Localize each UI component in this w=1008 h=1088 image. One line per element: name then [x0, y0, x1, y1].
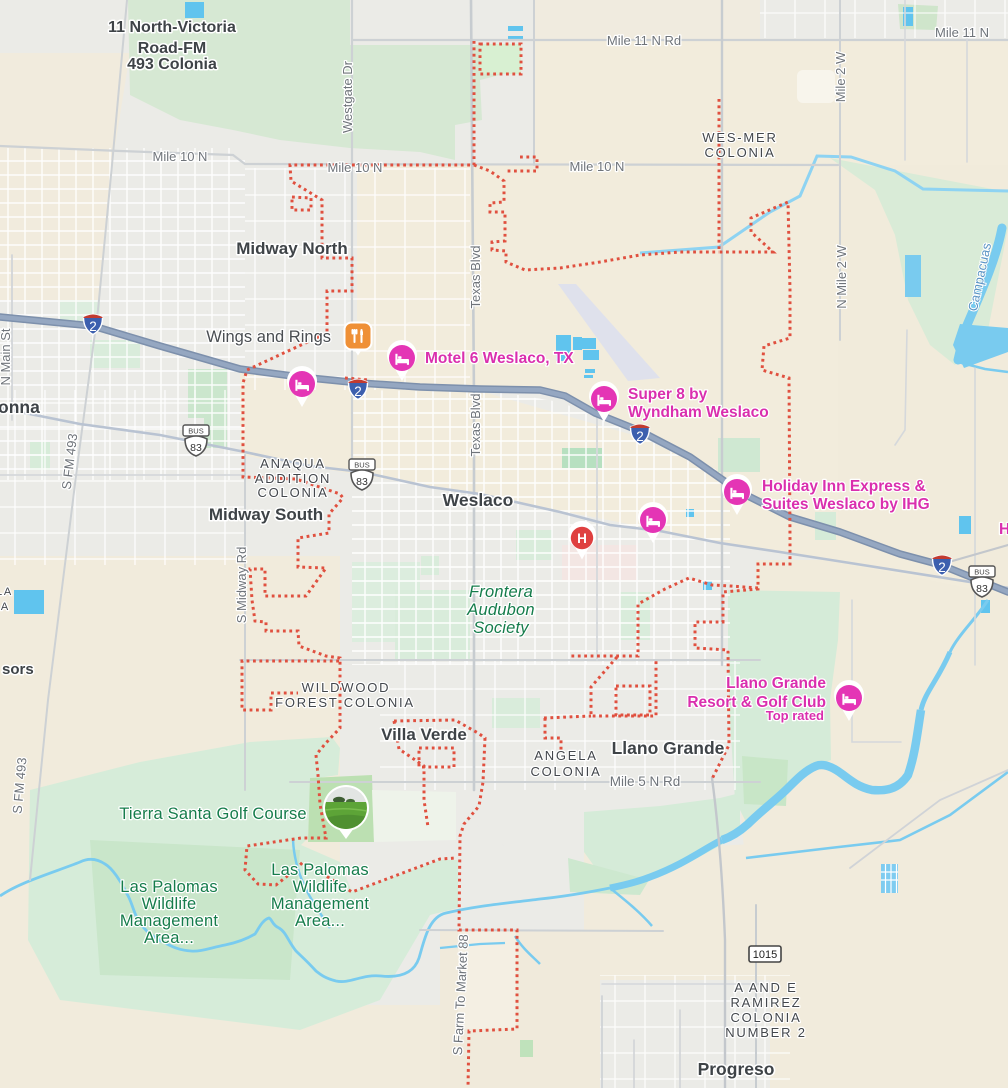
svg-text:A AND E: A AND E — [734, 980, 797, 995]
svg-text:Weslaco: Weslaco — [443, 490, 514, 510]
svg-text:NUMBER 2: NUMBER 2 — [725, 1025, 807, 1040]
svg-text:N Mile 2 W: N Mile 2 W — [834, 244, 849, 308]
svg-text:Tierra Santa Golf Course: Tierra Santa Golf Course — [119, 805, 307, 823]
svg-text:WES-MER: WES-MER — [702, 130, 777, 145]
svg-text:onna: onna — [0, 397, 40, 417]
svg-text:Frontera: Frontera — [469, 583, 533, 601]
svg-text:Texas Blvd: Texas Blvd — [468, 246, 483, 309]
svg-text:ADDITION: ADDITION — [255, 471, 332, 486]
svg-text:Midway North: Midway North — [236, 239, 347, 258]
svg-text:Area...: Area... — [144, 929, 194, 947]
svg-text:Midway South: Midway South — [209, 505, 323, 524]
svg-text:Wildlife: Wildlife — [293, 878, 348, 896]
svg-text:COLONIA: COLONIA — [730, 1010, 801, 1025]
svg-text:11 North-Victoria: 11 North-Victoria — [108, 19, 236, 36]
svg-text:LA: LA — [0, 586, 13, 598]
svg-text:Las Palomas: Las Palomas — [120, 878, 218, 896]
svg-text:Mile 10 N: Mile 10 N — [328, 160, 383, 175]
svg-text:Management: Management — [120, 912, 219, 930]
svg-text:Holiday Inn Express &: Holiday Inn Express & — [762, 478, 926, 495]
svg-text:Wildlife: Wildlife — [142, 895, 197, 913]
svg-text:Wyndham Weslaco: Wyndham Weslaco — [628, 404, 769, 421]
svg-text:sors: sors — [2, 661, 34, 678]
svg-text:Audubon: Audubon — [466, 601, 534, 619]
svg-text:Mile 10 N: Mile 10 N — [570, 159, 625, 174]
svg-text:493 Colonia: 493 Colonia — [127, 56, 217, 73]
svg-text:Area...: Area... — [295, 912, 345, 930]
svg-text:ANAQUA: ANAQUA — [260, 456, 326, 471]
svg-text:Wings and Rings: Wings and Rings — [206, 328, 331, 346]
svg-text:COLONIA: COLONIA — [257, 485, 328, 500]
svg-text:BUS: BUS — [974, 568, 989, 577]
svg-text:Suites Weslaco by IHG: Suites Weslaco by IHG — [762, 496, 930, 513]
svg-text:RAMIREZ: RAMIREZ — [730, 995, 801, 1010]
svg-text:BUS: BUS — [188, 427, 203, 436]
svg-text:Mile 2 W: Mile 2 W — [833, 51, 848, 102]
svg-text:BUS: BUS — [354, 461, 369, 470]
svg-text:Villa Verde: Villa Verde — [381, 725, 467, 744]
svg-text:Westgate Dr: Westgate Dr — [340, 60, 355, 133]
svg-text:Management: Management — [271, 895, 370, 913]
svg-text:Llano Grande: Llano Grande — [612, 738, 725, 758]
svg-text:H: H — [999, 521, 1008, 538]
svg-text:FOREST COLONIA: FOREST COLONIA — [275, 695, 415, 710]
svg-text:Mile 10 N: Mile 10 N — [153, 149, 208, 164]
svg-text:ANGELA: ANGELA — [534, 748, 598, 763]
svg-text:Motel 6 Weslaco, TX: Motel 6 Weslaco, TX — [425, 350, 574, 367]
svg-text:IA: IA — [0, 601, 10, 613]
svg-text:COLONIA: COLONIA — [704, 145, 775, 160]
svg-text:83: 83 — [356, 476, 368, 488]
svg-text:2: 2 — [938, 560, 946, 575]
svg-text:WILDWOOD: WILDWOOD — [302, 680, 391, 695]
svg-text:N Main St: N Main St — [0, 328, 13, 385]
svg-text:Mile 5 N Rd: Mile 5 N Rd — [610, 774, 681, 789]
svg-text:83: 83 — [976, 583, 988, 595]
svg-text:2: 2 — [89, 319, 97, 334]
svg-text:Super 8 by: Super 8 by — [628, 386, 708, 403]
svg-text:Top rated: Top rated — [766, 708, 824, 723]
svg-text:83: 83 — [190, 442, 202, 454]
svg-text:Mile 11 N: Mile 11 N — [935, 25, 989, 40]
svg-text:COLONIA: COLONIA — [530, 764, 601, 779]
svg-text:1015: 1015 — [753, 949, 777, 961]
svg-text:H: H — [577, 531, 587, 546]
svg-text:Road-FM: Road-FM — [138, 40, 206, 57]
svg-text:Texas Blvd: Texas Blvd — [468, 394, 483, 457]
svg-text:Progreso: Progreso — [698, 1059, 775, 1079]
svg-text:S Midway Rd: S Midway Rd — [234, 547, 249, 624]
svg-text:Las Palomas: Las Palomas — [271, 861, 369, 879]
svg-text:Llano Grande: Llano Grande — [726, 675, 826, 692]
svg-text:Mile 11 N Rd: Mile 11 N Rd — [607, 33, 681, 48]
svg-text:Society: Society — [473, 619, 530, 637]
svg-text:2: 2 — [636, 429, 644, 444]
svg-text:2: 2 — [354, 384, 362, 399]
